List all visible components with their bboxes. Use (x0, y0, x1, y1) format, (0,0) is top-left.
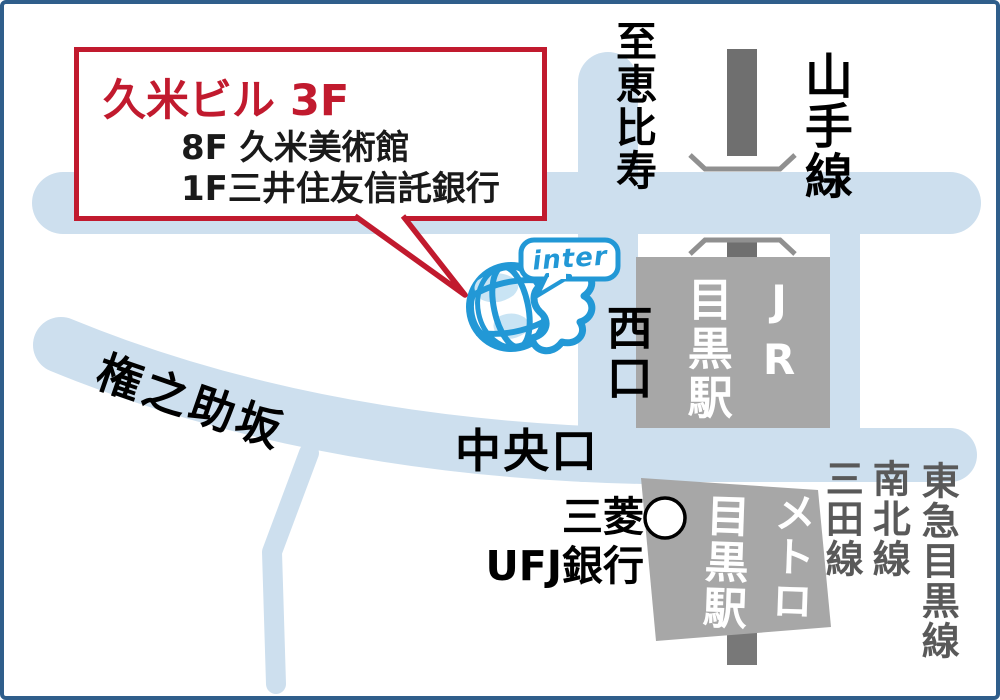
label-mitsubishi-ufj-bank: 三菱 UFJ銀行 (424, 493, 644, 591)
callout-tenant-8f: 8F 久米美術館 (181, 128, 500, 169)
access-map: 至恵比寿 山手線 西口 中央口 権之助坂 三菱 UFJ銀行 目黒駅 JR 目黒駅… (0, 0, 1000, 700)
metro-station-name: 目黒駅 (696, 492, 747, 632)
bank-line-2: UFJ銀行 (424, 542, 644, 591)
label-tokyu-meguro-line: 東急目黒線 (917, 461, 957, 661)
callout-tenant-1f: 1F三井住友信託銀行 (181, 169, 500, 210)
label-namboku-line: 南北線 (868, 459, 908, 579)
station-exit-marker (645, 498, 685, 538)
metro-station-company: メトロ (766, 490, 815, 623)
destination-callout: 久米ビル 3F 8F 久米美術館 1F三井住友信託銀行 (74, 47, 547, 221)
rail-underpass-mark-north (690, 155, 795, 169)
jr-station-company: JR (756, 276, 801, 394)
rail-segment-north (727, 49, 757, 156)
label-yamanote-line: 山手線 (798, 51, 849, 201)
bank-line-1: 三菱 (424, 493, 644, 542)
label-to-ebisu: 至恵比寿 (610, 20, 653, 192)
callout-tenants: 8F 久米美術館 1F三井住友信託銀行 (181, 128, 500, 210)
callout-title: 久米ビル 3F (103, 66, 349, 128)
label-west-exit: 西口 (602, 304, 651, 404)
jr-station-name: 目黒駅 (682, 276, 730, 423)
label-mita-line: 三田線 (821, 459, 861, 579)
label-central-exit: 中央口 (455, 427, 599, 476)
branch-road (272, 453, 309, 684)
inter-logo-text: inter (523, 241, 617, 277)
